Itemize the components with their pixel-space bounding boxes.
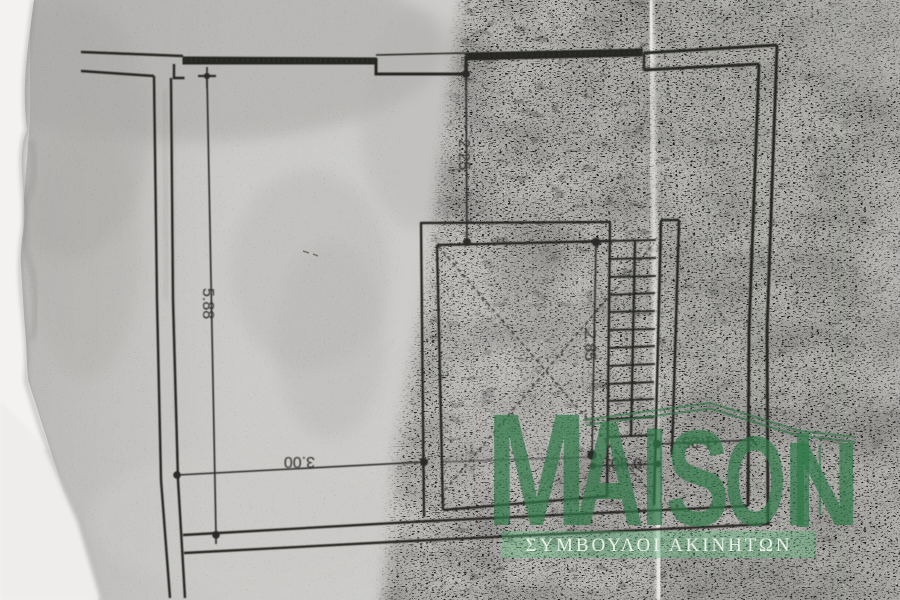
svg-text:N: N	[783, 418, 860, 550]
svg-text:3.00: 3.00	[284, 453, 315, 470]
svg-text:ΣΥΜΒΟΥΛΟΙ ΑΚΙΝΗΤΩΝ: ΣΥΜΒΟΥΛΟΙ ΑΚΙΝΗΤΩΝ	[526, 535, 793, 556]
svg-text:2.85: 2.85	[581, 330, 598, 361]
svg-text:5.88: 5.88	[199, 288, 216, 319]
svg-text:2.25: 2.25	[455, 139, 472, 170]
